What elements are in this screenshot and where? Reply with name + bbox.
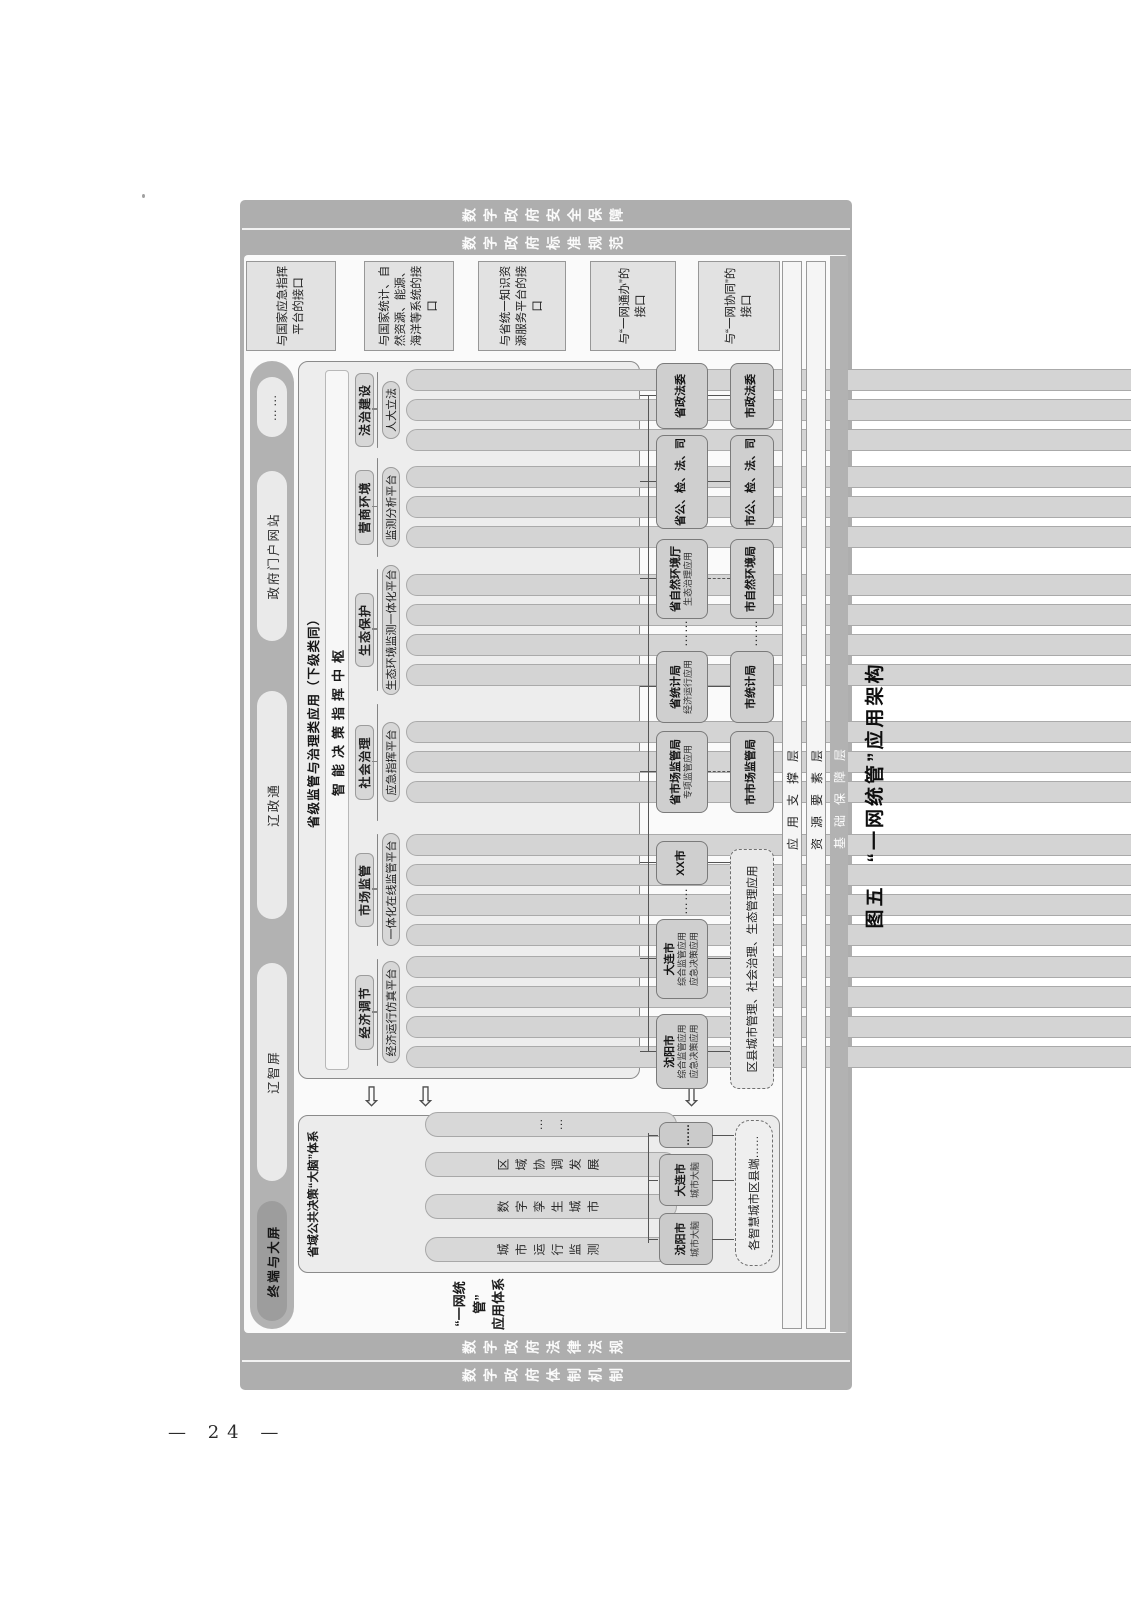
city-brain-sub: 城市大脑 <box>688 1221 701 1257</box>
row1-box-name: 省统计局 <box>670 665 683 709</box>
connector-line <box>708 577 730 579</box>
connector-line <box>640 862 656 863</box>
row2-box-name: 市统计局 <box>745 665 758 709</box>
stray-mark <box>142 194 145 198</box>
section-brace-icon <box>377 458 378 557</box>
row2-box-name: 市自然环境局 <box>745 546 758 612</box>
pillar-laws-regulations: 数字政府法律法规 <box>244 1335 848 1359</box>
pillar-security: 数字政府安全保障 <box>244 203 848 227</box>
system-label-line2: 应用体系 <box>489 1275 509 1333</box>
platform-pill: 应急指挥平台 <box>382 723 400 803</box>
row1-box: XX市 <box>656 841 708 885</box>
connector-line <box>708 481 730 482</box>
row1-box-name: XX市 <box>675 850 688 876</box>
interface-box: 与“一网协同”的接口 <box>698 261 780 351</box>
system-label-line1: “一网统管” <box>450 1275 489 1333</box>
row2-box: 市统计局 <box>730 651 774 723</box>
layer-data-elements: 资源要素层 <box>806 261 826 1329</box>
terminal-pill: 政府门户网站 <box>257 471 287 641</box>
content-panel: 终端与大屏辽智屏辽政通政府门户网站…… 与国家应急指挥平台的接口与国家统计、自然… <box>244 255 848 1333</box>
terminal-band: 终端与大屏辽智屏辽政通政府门户网站…… <box>250 361 294 1329</box>
terminal-pill: 辽智屏 <box>257 963 287 1181</box>
platform-pill: 生态环境监测一体化平台 <box>382 565 400 695</box>
row1-box-sub: 应急决策应用 <box>689 1025 700 1079</box>
divider <box>242 228 850 230</box>
city-brain-sub: 城市大脑 <box>688 1162 701 1198</box>
connector-line <box>640 578 656 579</box>
platform-pill: 经济运行仿真平台 <box>382 962 400 1064</box>
brain-pill: 城市运行监测 <box>425 1237 677 1262</box>
brain-pill: …… <box>425 1112 677 1137</box>
section-3: 社会治理应急指挥平台智慧警务疫情防控管理…… <box>355 700 633 825</box>
connector-line <box>648 1239 658 1240</box>
row1-box-sub: 专项监管应用 <box>683 745 694 799</box>
row1-box: 沈阳市综合监管应用应急决策应用 <box>656 1014 708 1089</box>
row1-box: 省统计局经济运行应用 <box>656 651 708 723</box>
row1-box: 省自然环境厅生态治理应用 <box>656 539 708 619</box>
connector-line <box>640 771 656 772</box>
section-brace-icon <box>377 834 378 946</box>
row2-box-name: 市政法委 <box>745 374 758 418</box>
section-label: 营商环境 <box>355 471 374 545</box>
interface-box: 与省统一知识资源服务平台的接口 <box>478 261 566 351</box>
row2-box: 市公、检、法、司 <box>730 435 774 529</box>
flow-arrow-icon: ⇦ <box>410 1079 440 1113</box>
section-label: 法治建设 <box>355 373 374 447</box>
row1-box-name: 省公、检、法、司 <box>675 438 688 526</box>
city-brain-name: 大连市 <box>672 1164 688 1197</box>
connector-line <box>708 958 730 959</box>
connector-line <box>648 1133 649 1243</box>
connector-line <box>640 1051 656 1052</box>
page-number: — 24 — <box>168 1422 286 1443</box>
row1-box-sub: 经济运行应用 <box>683 660 694 714</box>
interface-box: 与“一网通办”的接口 <box>590 261 676 351</box>
sections-row: 经济调节经济运行仿真平台产业链分析金融风险监测预警经济运行态势……市场监管一体化… <box>355 370 633 1070</box>
main-application-box: 省级监管与治理类应用（下级类同） 智能决策指挥中枢 经济调节经济运行仿真平台产业… <box>298 361 640 1079</box>
section-1: 经济调节经济运行仿真平台产业链分析金融风险监测预警经济运行态势…… <box>355 955 633 1070</box>
terminal-pill: 辽政通 <box>257 691 287 919</box>
connector-line <box>708 686 730 687</box>
row1-box-sub: 综合监管应用 <box>677 1025 688 1079</box>
section-brace-icon <box>377 704 378 821</box>
terminal-pill: …… <box>257 377 287 437</box>
row2-box-name: 市公、检、法、司 <box>745 438 758 526</box>
system-label: “一网统管” 应用体系 <box>450 1275 509 1333</box>
row1-box-sub: 综合监管应用 <box>677 932 688 986</box>
row1-box-sub: 生态治理应用 <box>683 552 694 606</box>
row1-box-name: 省市场监管局 <box>670 739 683 805</box>
row2-box-name: 市市场监管局 <box>745 739 758 805</box>
decision-hub-bar: 智能决策指挥中枢 <box>325 370 349 1070</box>
main-title: 省级监管与治理类应用（下级类同） <box>303 362 322 1078</box>
row1-box-sub: 应急决策应用 <box>689 932 700 986</box>
row1-box-name: 大连市 <box>664 943 677 976</box>
platform-pill: 一体化在线监管平台 <box>382 834 400 947</box>
dots-separator: …… <box>730 621 774 645</box>
section-4: 生态保护生态环境监测一体化平台自然资源一张图智慧海洋大数据智慧水利公共管理…… <box>355 565 633 695</box>
section-2: 市场监管一体化在线监管平台食品安全药品智慧监管智慧能源综合监管…… <box>355 830 633 950</box>
district-dashed-box: 区县城市管理、社会治理、生态管理应用 <box>730 849 774 1089</box>
row1-box: 省政法委 <box>656 363 708 429</box>
flow-arrow-icon: ⇦ <box>356 1079 386 1113</box>
layer-base-support: 基础保障层 <box>830 256 848 1332</box>
row1-box-name: 沈阳市 <box>664 1035 677 1068</box>
platform-pill: 人大立法 <box>382 381 400 439</box>
row2-box: 市市场监管局 <box>730 731 774 813</box>
row1-box-name: 省自然环境厅 <box>670 546 683 612</box>
connector-line <box>712 1180 734 1181</box>
divider <box>242 1360 850 1362</box>
connector-line <box>648 396 649 1052</box>
row1-box: 省市场监管局专项监管应用 <box>656 731 708 813</box>
connector-line <box>708 770 730 772</box>
brain-pill: 数字孪生城市 <box>425 1194 677 1219</box>
connector-line <box>640 395 656 396</box>
terminal-label-pill: 终端与大屏 <box>257 1201 287 1321</box>
platform-pill: 监测分析平台 <box>382 468 400 548</box>
city-brain-name: 沈阳市 <box>672 1223 688 1256</box>
brain-box: 省域公共决策“大脑”体系 各智慧城市区县端…… 城市运行监测数字孪生城市区域协调… <box>298 1115 780 1273</box>
city-brain-box: 沈阳市城市大脑 <box>659 1213 713 1265</box>
interface-box: 与国家应急指挥平台的接口 <box>246 261 336 351</box>
pillar-system-mechanism: 数字政府体制机制 <box>244 1363 848 1387</box>
section-6: 法治建设人大立法政法一体化公、检、法、司…… <box>355 370 633 450</box>
dots-separator: …… <box>656 889 708 913</box>
section-brace-icon <box>377 372 378 448</box>
row2-box: 市自然环境局 <box>730 539 774 619</box>
connector-line <box>640 958 656 959</box>
dots-separator: …… <box>656 621 708 645</box>
layer-app-support: 应用支撑层 <box>782 261 802 1329</box>
interface-box: 与国家统计、自然资源、能源、海洋等系统的接口 <box>364 261 454 351</box>
brain-title: 省域公共决策“大脑”体系 <box>305 1116 321 1272</box>
brain-pill: 区域协调发展 <box>425 1152 677 1177</box>
connector-line <box>708 862 730 863</box>
connector-line <box>648 1180 658 1181</box>
row1-box: 大连市综合监管应用应急决策应用 <box>656 919 708 999</box>
figure-rotated-canvas: 数字政府体制机制 数字政府法律法规 数字政府标准规范 数字政府安全保障 终端与大… <box>240 200 900 1390</box>
city-brain-name: …… <box>680 1124 692 1146</box>
figure-caption: 图五 “一网统管”应用架构 <box>860 200 887 1390</box>
connector-line <box>640 481 656 482</box>
section-brace-icon <box>377 569 378 691</box>
row1-box-name: 省政法委 <box>675 374 688 418</box>
section-label: 生态保护 <box>355 593 374 667</box>
city-brain-box: …… <box>659 1122 713 1148</box>
connector-line <box>640 686 656 687</box>
document-page: 数字政府体制机制 数字政府法律法规 数字政府标准规范 数字政府安全保障 终端与大… <box>0 0 1131 1600</box>
row2-box: 市政法委 <box>730 363 774 429</box>
connector-line <box>712 1239 734 1240</box>
city-brain-box: 大连市城市大脑 <box>659 1154 713 1206</box>
figure-frame: 数字政府体制机制 数字政府法律法规 数字政府标准规范 数字政府安全保障 终端与大… <box>240 200 852 1390</box>
section-5: 营商环境监测分析平台营商环境评价信用辽宁…… <box>355 455 633 560</box>
connector-line <box>712 1135 734 1136</box>
connector-line <box>648 1135 658 1136</box>
row1-box: 省公、检、法、司 <box>656 435 708 529</box>
connector-line <box>708 395 730 396</box>
connector-line <box>708 1051 730 1052</box>
brain-dashed-box: 各智慧城市区县端…… <box>735 1120 773 1266</box>
pillar-standards: 数字政府标准规范 <box>244 231 848 255</box>
section-brace-icon <box>377 959 378 1067</box>
section-label: 社会治理 <box>355 726 374 800</box>
